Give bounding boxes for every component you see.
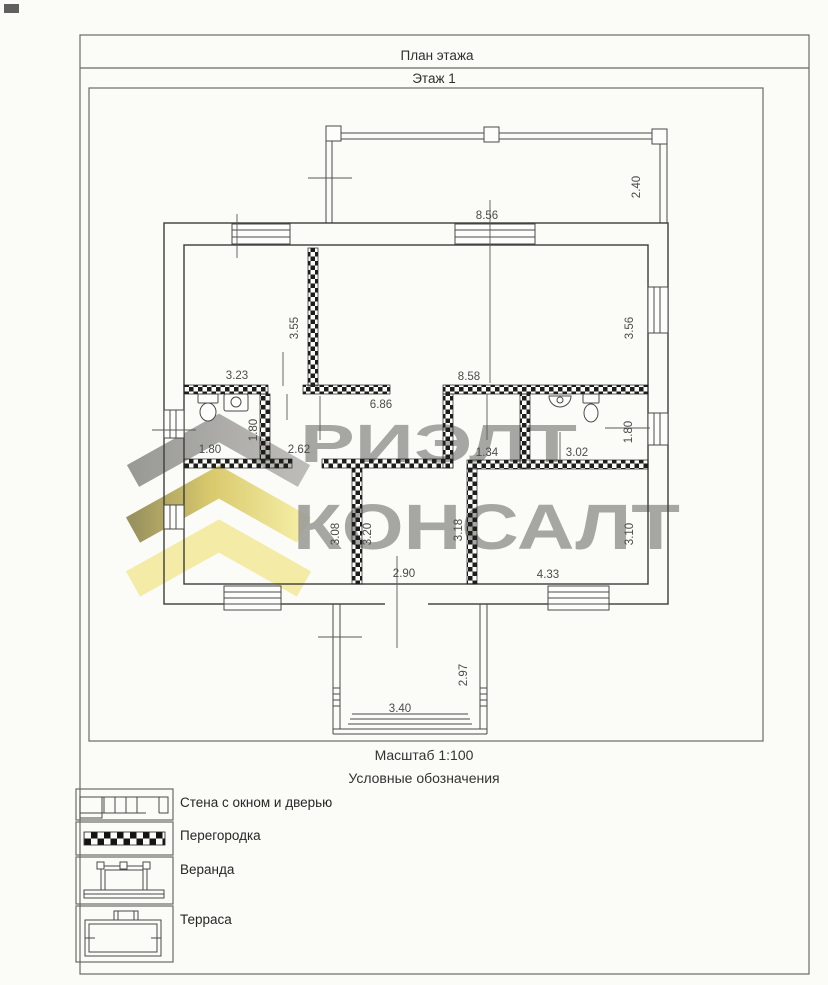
dim-hall-right-width: 1.34 xyxy=(476,447,499,459)
window-top-left xyxy=(232,224,290,244)
partition-bottom-left xyxy=(352,468,362,584)
partition-wc-left xyxy=(260,394,270,460)
dim-room-br-height: 3.10 xyxy=(624,523,636,545)
dim-room-tl-height: 3.55 xyxy=(289,317,301,339)
dim-hall-length: 6.86 xyxy=(370,399,392,411)
chevron-pale-icon xyxy=(133,536,304,584)
toilet-bowl-icon xyxy=(200,403,216,421)
dim-wc-left-height: 1.80 xyxy=(248,419,260,441)
wall-window-door-icon xyxy=(80,797,168,818)
veranda-post xyxy=(652,129,667,144)
window-bottom-right xyxy=(548,586,609,610)
dim-hall-left-width: 2.62 xyxy=(288,444,310,456)
toilet-bowl-icon xyxy=(584,404,598,422)
dim-veranda-width: 8.56 xyxy=(476,210,498,222)
terrace-door-opening xyxy=(385,597,428,608)
watermark-line2: КОНСАЛТ xyxy=(293,491,680,563)
partition-h2-left xyxy=(184,459,292,468)
legend-item-veranda: Веранда xyxy=(76,857,235,904)
veranda-post xyxy=(484,127,499,142)
scanned-floor-plan-page: План этажа Этаж 1 РИЭЛТ КОНСАЛТ xyxy=(0,0,828,985)
veranda xyxy=(308,126,667,223)
partition-h1-right xyxy=(443,385,648,394)
window-right-lower xyxy=(648,413,668,445)
veranda-post xyxy=(326,126,341,141)
floor-plan-svg: План этажа Этаж 1 РИЭЛТ КОНСАЛТ xyxy=(0,0,828,985)
toilet-icon xyxy=(583,394,599,403)
dim-terrace-height: 2.97 xyxy=(458,664,470,686)
partition-hall-left xyxy=(443,394,453,468)
dim-room-bm-height-right: 3.18 xyxy=(453,519,465,541)
legend-label-terrace: Терраса xyxy=(180,912,232,927)
page-title: План этажа xyxy=(401,48,474,63)
veranda-symbol-icon xyxy=(84,862,164,898)
dim-room-bm-width: 2.90 xyxy=(393,568,415,580)
dim-living-width: 8.58 xyxy=(458,371,480,383)
toilet-icon xyxy=(198,394,218,403)
dim-wc-right-height: 1.80 xyxy=(623,421,635,443)
watermark: РИЭЛТ КОНСАЛТ xyxy=(133,414,680,584)
legend-label-partition: Перегородка xyxy=(180,828,261,843)
legend-title: Условные обозначения xyxy=(348,770,499,786)
floor-label: Этаж 1 xyxy=(412,71,456,86)
legend-label-wall: Стена с окном и дверью xyxy=(180,795,332,810)
partition-h2-mid xyxy=(322,459,453,468)
partition-wc-right xyxy=(520,394,530,468)
partition-pattern-icon xyxy=(84,832,165,845)
dim-room-bl-height: 3.08 xyxy=(330,523,342,545)
partition-vertical-top xyxy=(308,248,318,386)
terrace-window-left xyxy=(333,688,340,706)
terrace-window-right xyxy=(480,688,487,706)
legend-label-veranda: Веранда xyxy=(180,862,235,877)
window-top-middle xyxy=(455,224,535,244)
legend-item-wall: Стена с окном и дверью xyxy=(76,789,332,820)
dim-terrace-width: 3.40 xyxy=(389,703,411,715)
window-left-lower xyxy=(164,505,184,529)
footer: Масштаб 1:100 Условные обозначения xyxy=(348,747,499,786)
dim-room-br-width: 4.33 xyxy=(537,569,559,581)
scale-label: Масштаб 1:100 xyxy=(375,747,474,763)
terrace-symbol-icon xyxy=(85,911,161,956)
partition-bottom-right xyxy=(467,468,477,584)
legend: Стена с окном и дверью Перегородка Веран… xyxy=(76,789,332,962)
window-right-upper xyxy=(648,287,668,333)
scan-artifact xyxy=(4,4,19,13)
dim-living-height: 3.56 xyxy=(624,317,636,339)
window-bottom-left xyxy=(224,586,281,610)
partition-h1-mid xyxy=(303,385,390,394)
dim-room-bm-height-left: 3.20 xyxy=(362,523,374,545)
dim-room-tl-width: 3.23 xyxy=(226,370,248,382)
dim-wc-left-width: 1.80 xyxy=(199,444,221,456)
sink-drain-icon xyxy=(557,397,563,403)
sink-drain-icon xyxy=(231,397,241,407)
partition-h2-right xyxy=(467,460,648,469)
partition-h1-left xyxy=(184,385,268,394)
legend-item-partition: Перегородка xyxy=(76,822,261,855)
dim-wc-right-width: 3.02 xyxy=(566,447,588,459)
dim-veranda-height: 2.40 xyxy=(631,176,643,198)
legend-item-terrace: Терраса xyxy=(76,906,232,962)
window-left-upper xyxy=(164,410,184,438)
